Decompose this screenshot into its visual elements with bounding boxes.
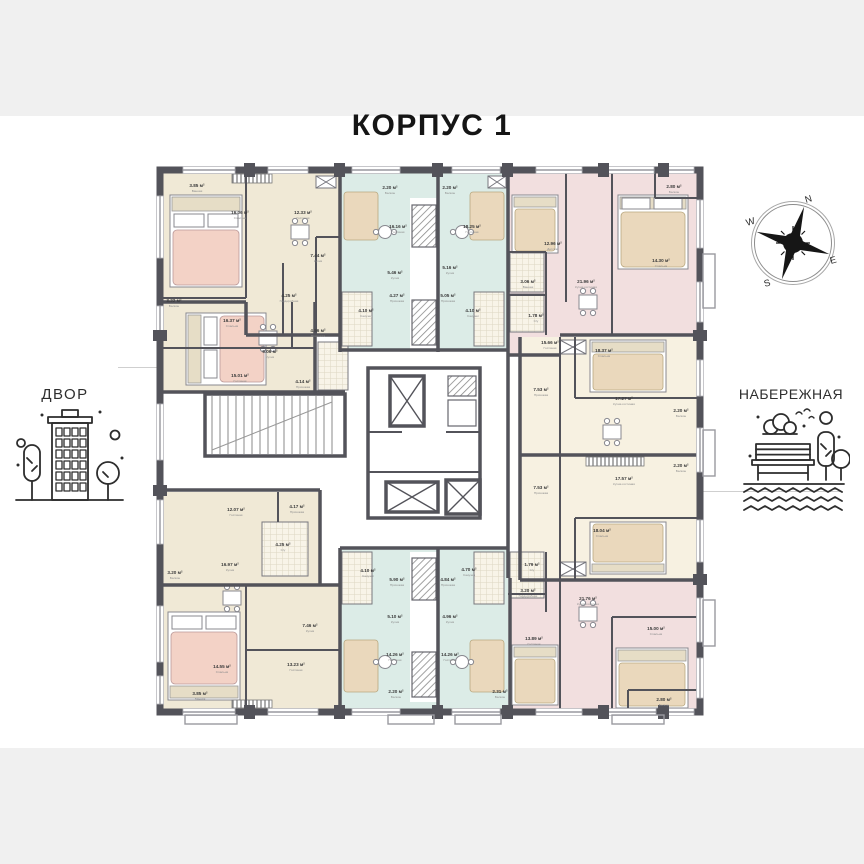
wardrobe (586, 457, 644, 466)
room-label: 21.96 м²Кухня-гостиная (575, 279, 597, 289)
room-label: 4.14 м²Прихожая (295, 379, 311, 389)
room-label: 4.56 м²Прихожая (310, 328, 326, 338)
bed (168, 612, 240, 700)
courtyard-label: ДВОР (10, 386, 120, 403)
top-band (0, 0, 864, 116)
compass-s: S (763, 277, 772, 289)
room-label: 7.53 м²Прихожая (533, 485, 549, 495)
room-label: 5.90 м²Прихожая (389, 577, 405, 587)
bed (512, 645, 558, 705)
compass-n: N (804, 195, 814, 206)
room-label: 5.05 м²Прихожая (440, 293, 456, 303)
daybed (470, 640, 504, 692)
room-label: 4.17 м²Прихожая (289, 504, 305, 514)
room-label: 17.57 м²Кухня-гостиная (613, 476, 635, 486)
room-label: 4.10 м²Санузел (465, 308, 481, 318)
room-label: 4.70 м²Санузел (461, 567, 477, 577)
room-label: 4.10 м²Санузел (358, 308, 374, 318)
compass-rose: N W E S (745, 195, 845, 295)
daybed (344, 640, 378, 692)
room-label: 7.53 м²Прихожая (533, 387, 549, 397)
bed (616, 648, 688, 708)
room-label: 17.27 м²Кухня-гостиная (613, 396, 635, 406)
daybed (344, 192, 378, 240)
room-label: 4.27 м²Прихожая (389, 293, 405, 303)
bottom-band (0, 748, 864, 864)
room-label: 3.20 м²Гардеробная (519, 588, 538, 598)
page-title: КОРПУС 1 (0, 109, 864, 143)
room-label: 4.10 м²Санузел (360, 568, 376, 578)
embankment-park-icon (738, 404, 850, 514)
courtyard-building-icon (12, 403, 127, 503)
embankment-label: НАБЕРЕЖНАЯ (722, 386, 860, 402)
bed (170, 195, 242, 287)
room-label: 4.25 м²Гардеробная (280, 293, 299, 303)
room-label: 4.84 м²Прихожая (440, 577, 456, 587)
room-label: 21.76 м²Кухня-гостиная (577, 596, 599, 606)
compass-e: E (829, 254, 838, 266)
floor-plan: 3.85 м²Ванная16.06 м²Спальня12.33 м²Гост… (150, 160, 730, 750)
